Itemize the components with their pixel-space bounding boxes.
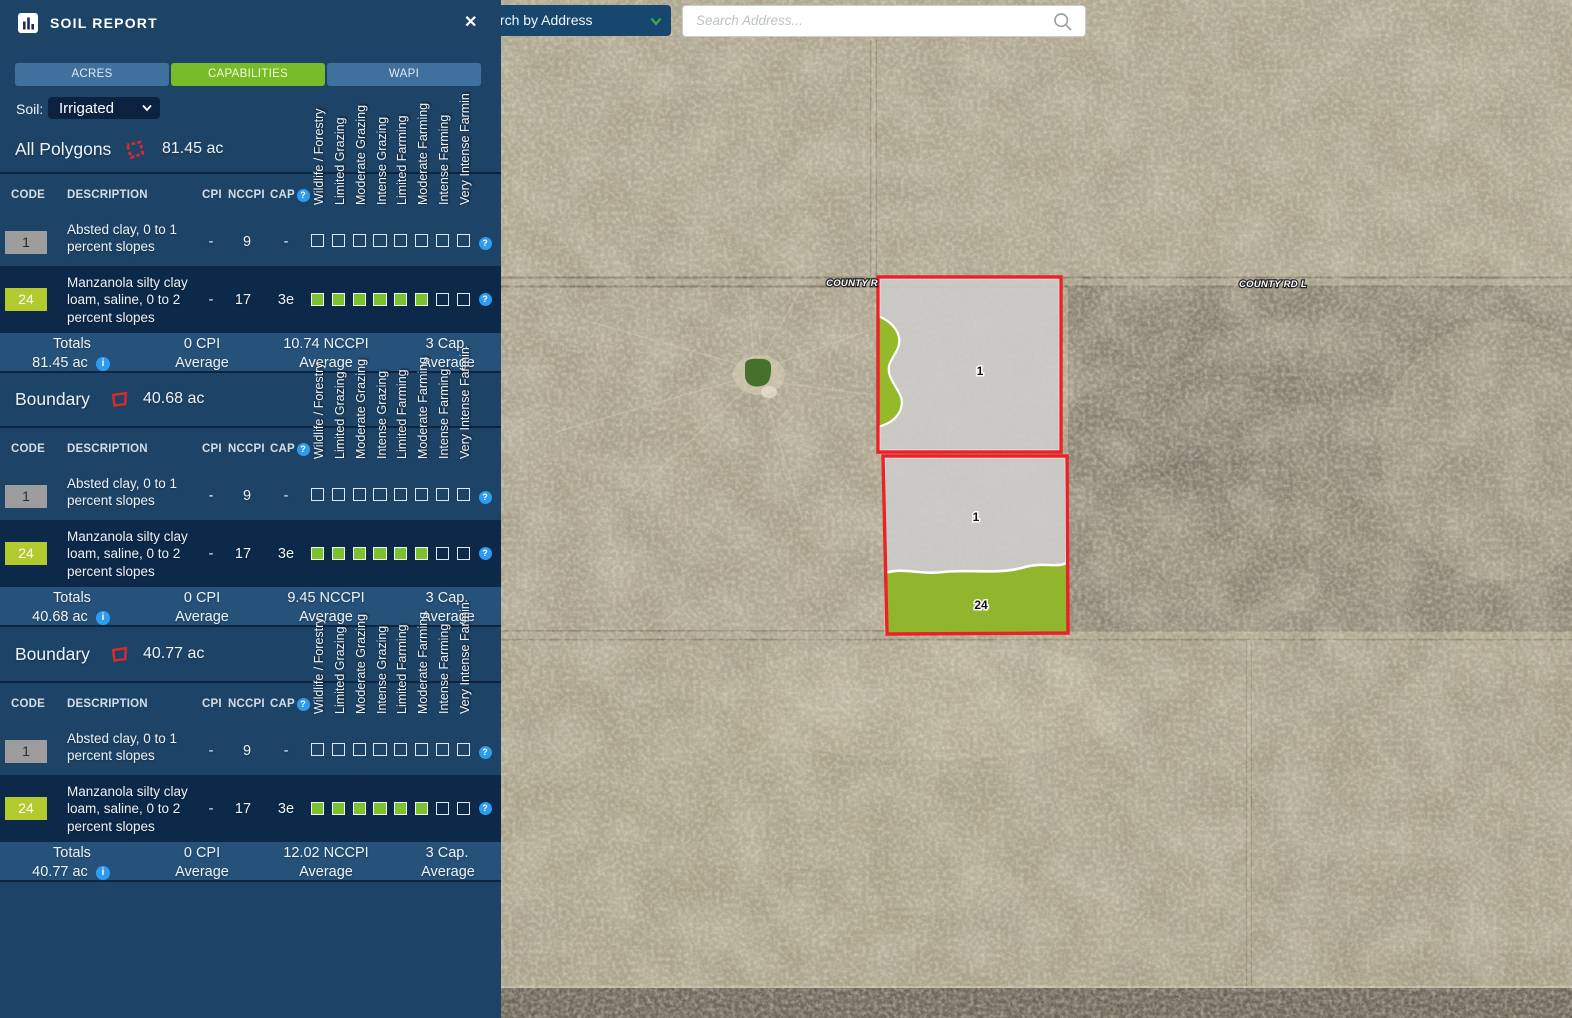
svg-text:1: 1: [973, 510, 980, 524]
svg-text:24: 24: [974, 598, 988, 612]
svg-text:COUNTY R: COUNTY R: [826, 278, 878, 289]
svg-text:COUNTY RD L: COUNTY RD L: [1239, 279, 1307, 290]
svg-text:1: 1: [977, 364, 984, 378]
